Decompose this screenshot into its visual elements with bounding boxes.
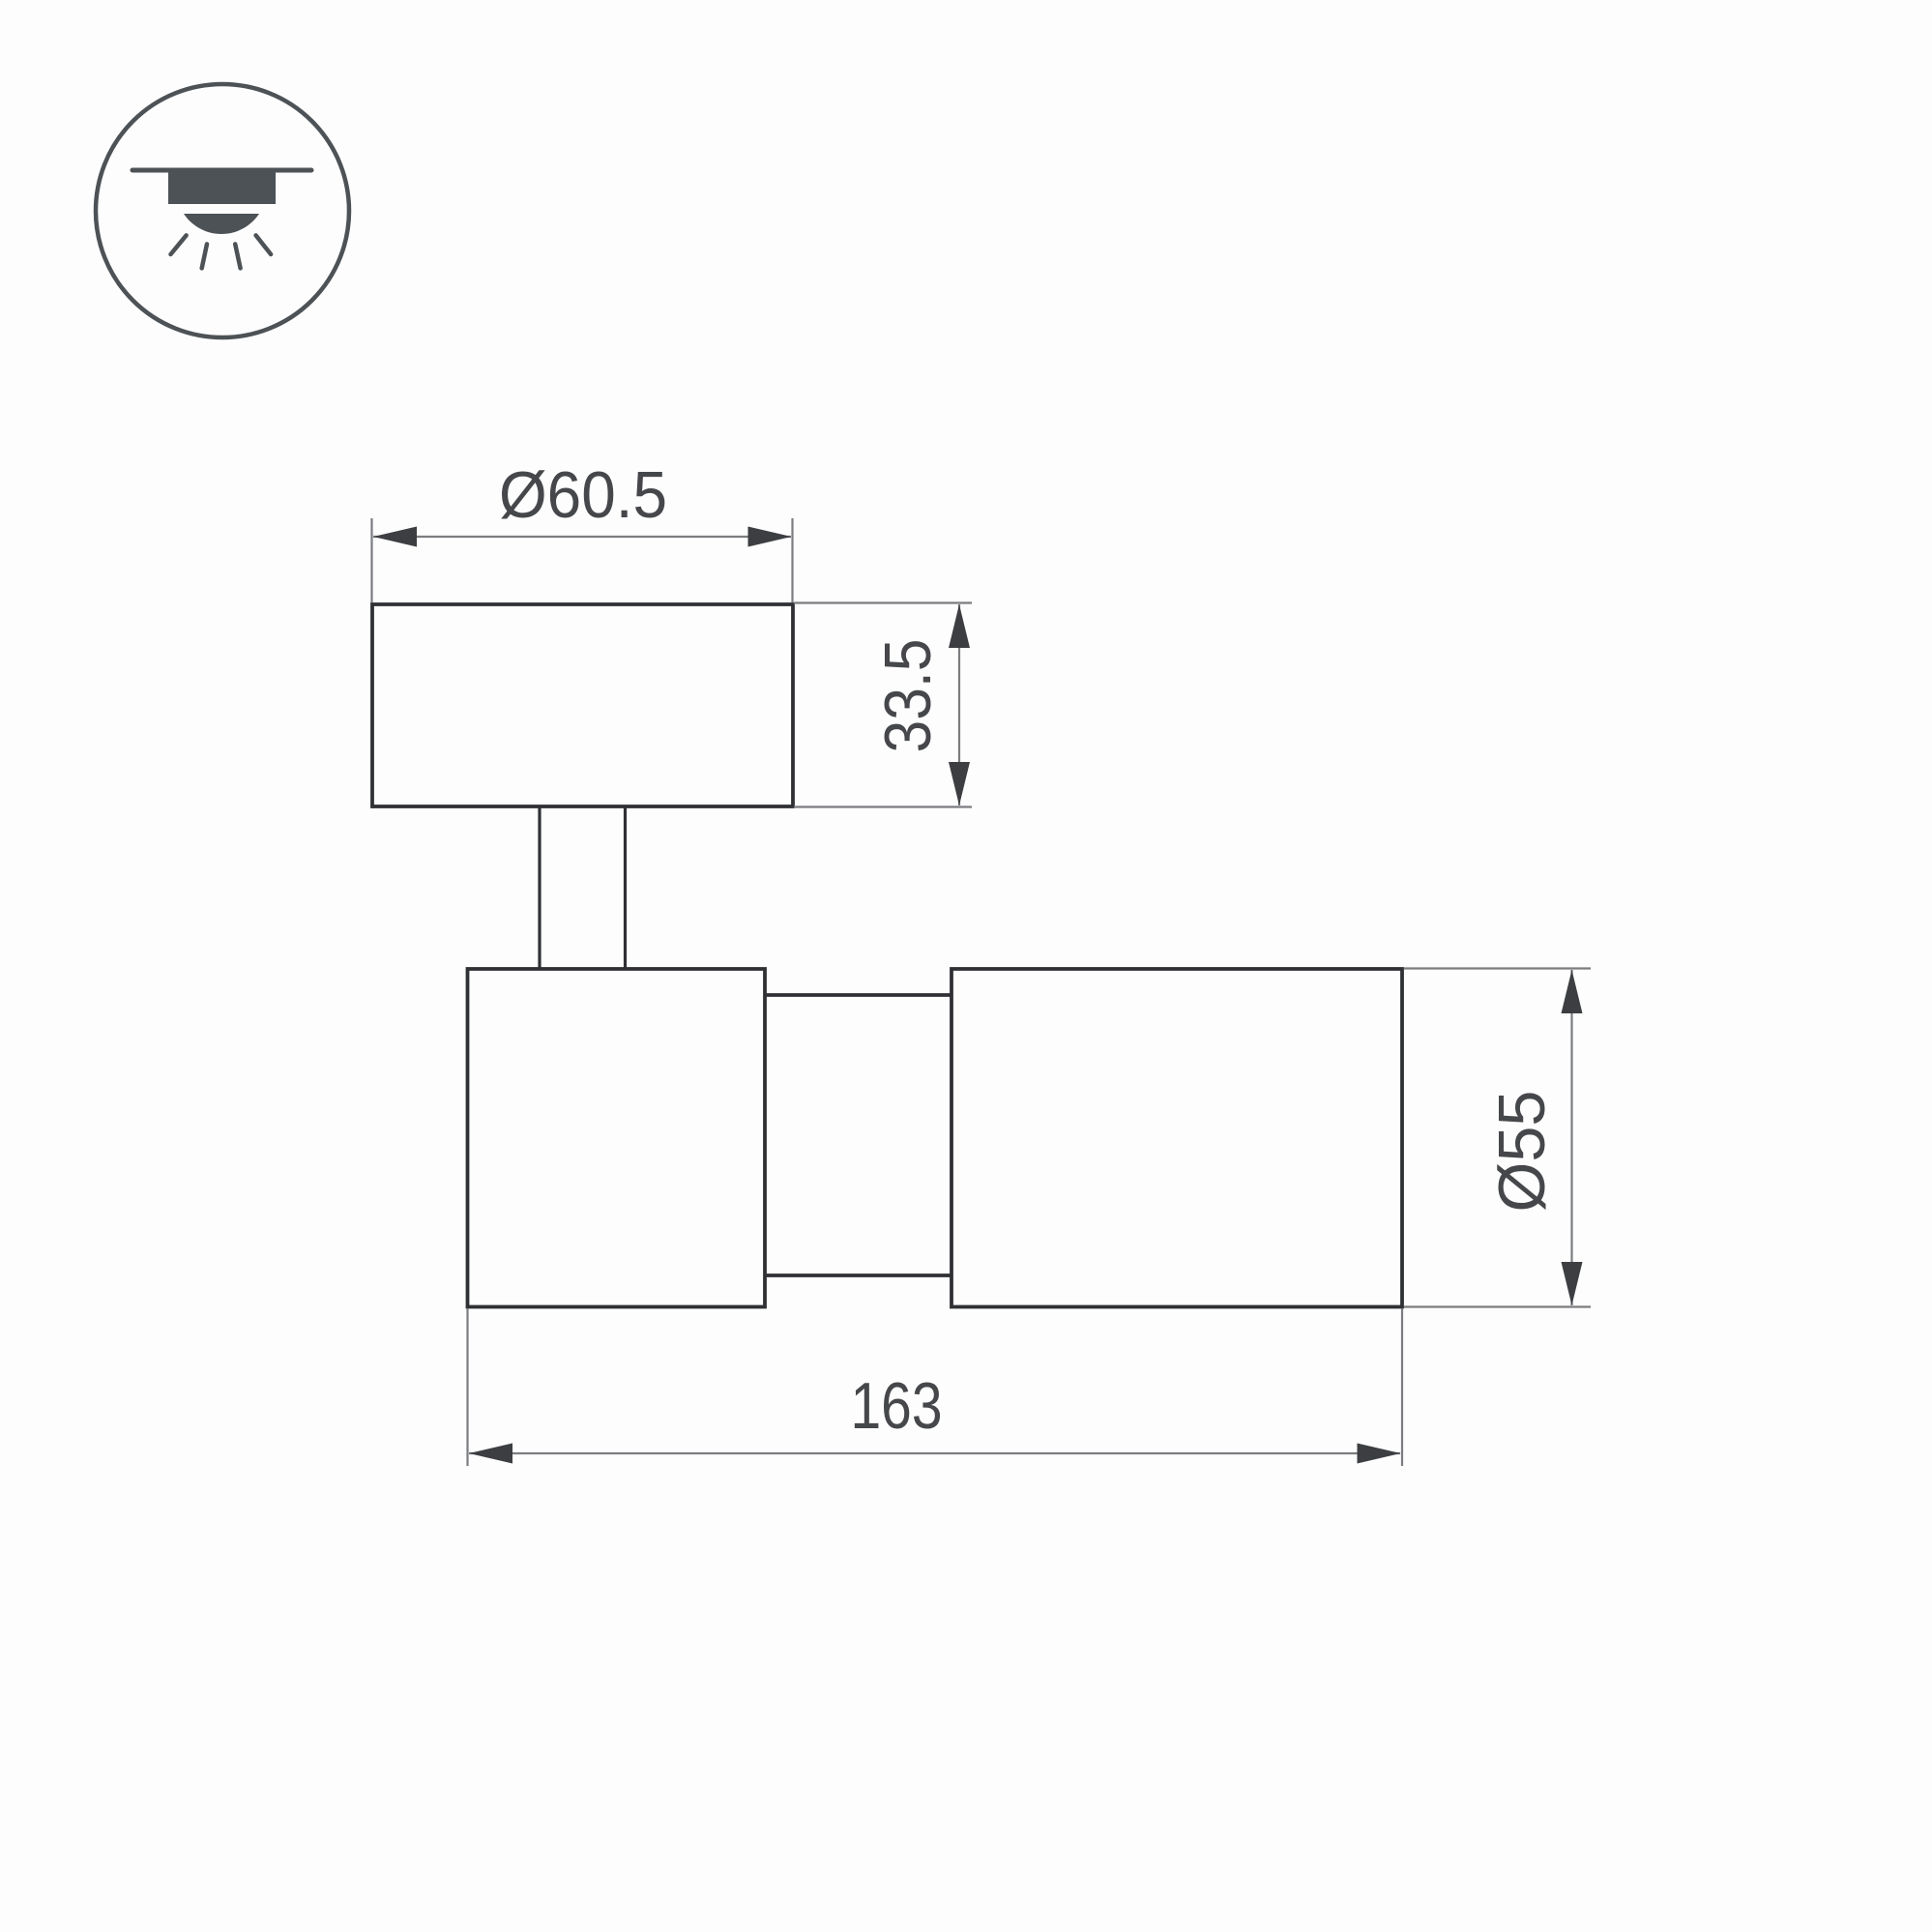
svg-text:163: 163: [851, 1369, 943, 1443]
svg-text:33.5: 33.5: [871, 639, 945, 753]
svg-text:Ø55: Ø55: [1485, 1091, 1559, 1213]
svg-text:Ø60.5: Ø60.5: [499, 458, 667, 532]
